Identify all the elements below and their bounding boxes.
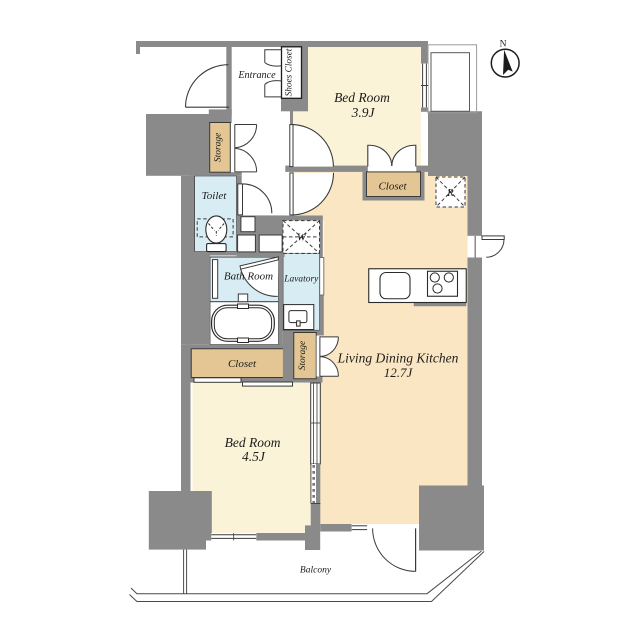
svg-text:3.9J: 3.9J [351,105,376,120]
svg-text:Shoes Closet: Shoes Closet [285,48,295,96]
svg-text:Living Dining Kitchen: Living Dining Kitchen [337,351,459,366]
svg-text:W: W [297,232,307,244]
svg-text:12.7J: 12.7J [384,365,414,380]
svg-text:Bath Room: Bath Room [224,271,273,283]
svg-text:Lavatory: Lavatory [283,275,319,285]
svg-text:Closet: Closet [228,358,257,370]
svg-text:N: N [500,40,507,50]
svg-text:Entrance: Entrance [237,70,276,81]
svg-text:R: R [446,188,454,199]
svg-text:Closet: Closet [378,181,407,193]
svg-text:Balcony: Balcony [300,566,332,576]
svg-text:Storage: Storage [214,133,224,163]
svg-text:Bed Room: Bed Room [225,435,281,450]
svg-text:Storage: Storage [298,341,308,371]
svg-text:Toilet: Toilet [202,190,228,202]
svg-text:Bed Room: Bed Room [334,90,390,105]
svg-text:4.5J: 4.5J [242,449,266,464]
